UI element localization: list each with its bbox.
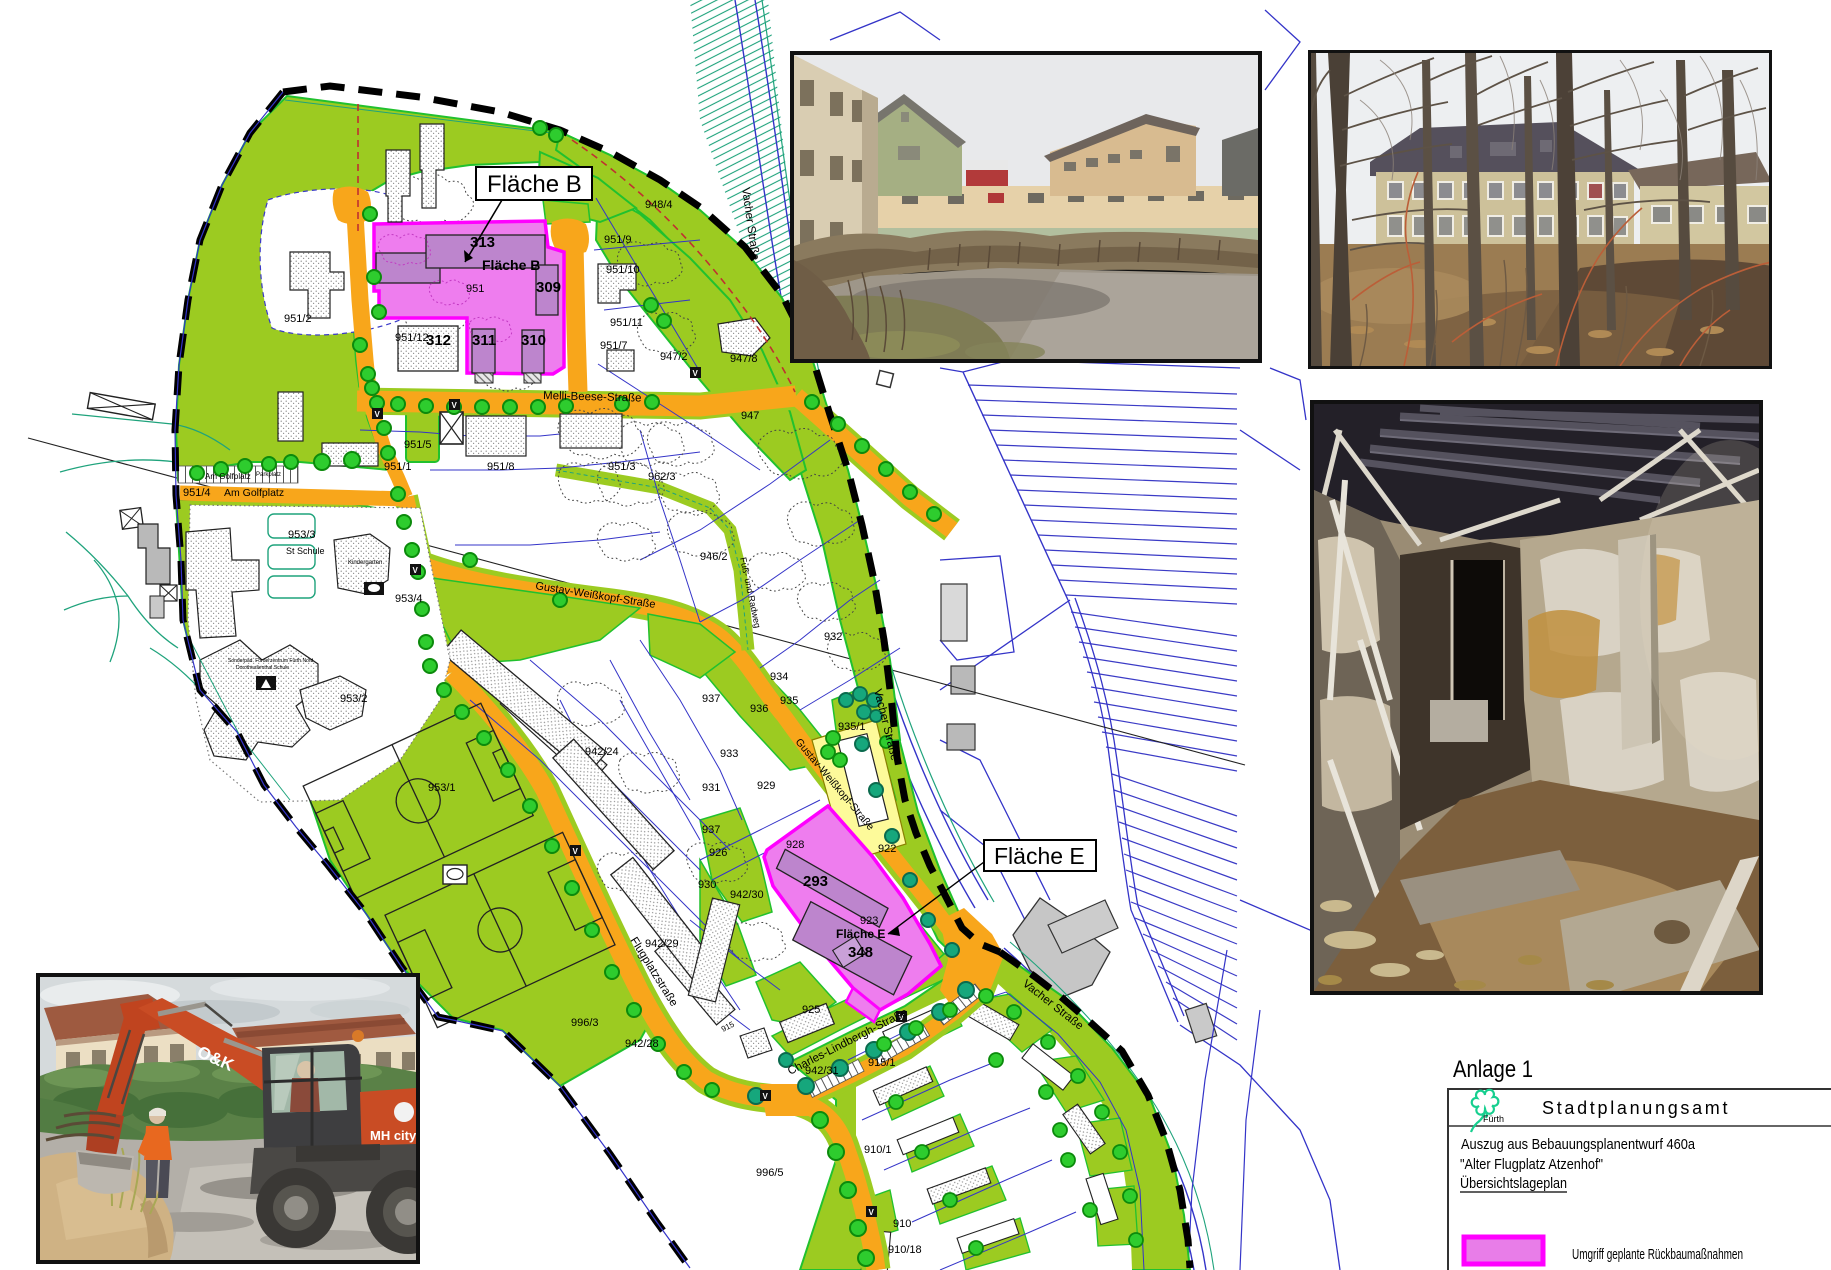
svg-text:951/1: 951/1 (384, 461, 412, 473)
svg-text:951/2: 951/2 (284, 313, 312, 325)
svg-text:915/1: 915/1 (868, 1057, 896, 1069)
svg-text:962/3: 962/3 (648, 471, 676, 483)
svg-text:V: V (375, 410, 381, 419)
svg-text:MH city: MH city (370, 1128, 417, 1143)
svg-text:925: 925 (802, 1004, 820, 1016)
svg-text:348: 348 (848, 944, 873, 961)
svg-text:942/28: 942/28 (625, 1038, 659, 1050)
svg-text:311: 311 (472, 332, 496, 349)
svg-text:951/12: 951/12 (395, 332, 429, 344)
svg-text:951/5: 951/5 (404, 439, 432, 451)
svg-text:V: V (573, 847, 579, 856)
svg-text:Sonderpäd. Förderzentrum Fürth: Sonderpäd. Förderzentrum Fürth Nord (228, 658, 314, 664)
svg-text:951/4: 951/4 (183, 487, 211, 499)
svg-text:V: V (869, 1208, 875, 1217)
svg-text:Auszug aus Bebauungsplanentwur: Auszug aus Bebauungsplanentwurf 460a (1461, 1136, 1696, 1153)
svg-text:931: 931 (702, 782, 720, 794)
svg-text:932: 932 (824, 631, 842, 643)
svg-text:937: 937 (702, 824, 720, 836)
svg-text:Fläche B: Fläche B (482, 257, 540, 273)
svg-text:Anlage 1: Anlage 1 (1453, 1056, 1533, 1083)
svg-text:996/3: 996/3 (571, 1017, 599, 1029)
svg-text:946/2: 946/2 (700, 551, 728, 563)
svg-text:953/3: 953/3 (288, 529, 316, 541)
svg-text:947/8: 947/8 (730, 353, 758, 365)
svg-text:942/24: 942/24 (585, 746, 619, 758)
svg-text:Fläche B: Fläche B (487, 171, 582, 198)
svg-text:935/1: 935/1 (838, 721, 866, 733)
svg-text:951/8: 951/8 (487, 461, 515, 473)
svg-text:V: V (693, 369, 699, 378)
svg-text:953/4: 953/4 (395, 593, 423, 605)
svg-text:Fläche E: Fläche E (836, 927, 885, 941)
svg-text:942/29: 942/29 (645, 938, 679, 950)
svg-text:933: 933 (720, 748, 738, 760)
svg-text:312: 312 (426, 332, 451, 349)
svg-text:Fläche E: Fläche E (994, 843, 1085, 869)
svg-text:Fürth: Fürth (1483, 1114, 1504, 1124)
svg-text:951/11: 951/11 (610, 317, 643, 329)
svg-text:910/18: 910/18 (888, 1244, 922, 1256)
svg-text:953/1: 953/1 (428, 782, 456, 794)
svg-text:934: 934 (770, 671, 788, 683)
svg-text:Am Golfplatz: Am Golfplatz (224, 487, 284, 499)
svg-text:Am Golfplatz: Am Golfplatz (205, 472, 251, 481)
svg-text:V: V (763, 1092, 769, 1101)
svg-text:923: 923 (860, 915, 878, 927)
svg-text:"Alter Flugplatz Atzenhof": "Alter Flugplatz Atzenhof" (1460, 1156, 1603, 1173)
svg-text:951/10: 951/10 (606, 264, 640, 276)
svg-text:926: 926 (709, 847, 727, 859)
svg-text:Parkplatz: Parkplatz (256, 472, 281, 478)
svg-text:937: 937 (702, 693, 720, 705)
svg-text:928: 928 (786, 839, 804, 851)
svg-text:951: 951 (466, 283, 484, 295)
svg-text:951/9: 951/9 (604, 234, 632, 246)
svg-text:948/4: 948/4 (645, 199, 673, 211)
svg-text:910: 910 (893, 1218, 911, 1230)
svg-text:930: 930 (698, 879, 716, 891)
svg-text:935: 935 (780, 695, 798, 707)
svg-text:Umgriff geplante Rückbaumaßnah: Umgriff geplante Rückbaumaßnahmen (1572, 1247, 1743, 1263)
svg-text:929: 929 (757, 780, 775, 792)
svg-text:Übersichtslageplan: Übersichtslageplan (1460, 1174, 1567, 1192)
svg-text:947/2: 947/2 (660, 351, 688, 363)
svg-text:942/30: 942/30 (730, 889, 764, 901)
svg-text:951/3: 951/3 (608, 461, 636, 473)
svg-text:St Schule: St Schule (286, 546, 325, 556)
svg-text:996/5: 996/5 (756, 1167, 784, 1179)
svg-text:309: 309 (536, 279, 561, 296)
svg-text:Kindergarten: Kindergarten (348, 560, 382, 566)
svg-text:953/2: 953/2 (340, 693, 368, 705)
svg-text:293: 293 (803, 873, 828, 890)
svg-text:910/1: 910/1 (864, 1144, 892, 1156)
svg-text:951/7: 951/7 (600, 340, 628, 352)
svg-text:947: 947 (741, 410, 759, 422)
svg-text:936: 936 (750, 703, 768, 715)
svg-text:V: V (452, 401, 458, 410)
svg-text:310: 310 (521, 332, 546, 349)
svg-text:Dorothealienthal Schule: Dorothealienthal Schule (236, 665, 289, 671)
svg-text:922: 922 (878, 843, 896, 855)
svg-text:Stadtplanungsamt: Stadtplanungsamt (1542, 1098, 1730, 1118)
svg-text:V: V (413, 566, 419, 575)
